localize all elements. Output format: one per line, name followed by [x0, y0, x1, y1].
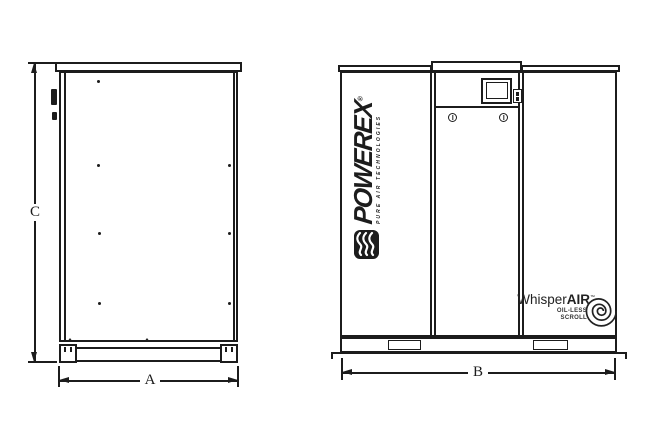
dim-c-arrow-up	[31, 63, 37, 73]
dim-b-arrow-left	[342, 369, 352, 375]
whisperair-subtitle-scroll: SCROLL	[561, 315, 587, 321]
panel-screw	[448, 113, 457, 122]
dim-c-arrow-down	[31, 352, 37, 362]
powerex-wordmark: POWEREX®	[350, 95, 376, 225]
whisperair-subtitle-oilless: OIL-LESS	[557, 308, 587, 314]
dim-c-label: C	[25, 204, 45, 221]
dim-b-arrow-right	[605, 369, 615, 375]
control-display-screen	[486, 82, 508, 99]
panel-screw-dot	[98, 302, 101, 305]
ground-line-end-tick	[625, 354, 627, 359]
front-view-base-skid	[340, 337, 617, 353]
side-view-base-rail	[64, 347, 233, 362]
foot-bolt-slot	[225, 347, 227, 352]
control-button-unit	[513, 89, 522, 103]
side-view-inner-edge-left	[64, 73, 66, 340]
trademark-mark: ™	[590, 295, 595, 301]
panel-screw	[499, 113, 508, 122]
panel-screw-dot	[97, 164, 100, 167]
whisperair-logo: WhisperAIR™ OIL-LESS SCROLL	[528, 292, 618, 334]
side-view-cabinet-body	[59, 71, 238, 342]
panel-screw-dot	[228, 302, 231, 305]
panel-screw-dot	[228, 164, 231, 167]
side-view-inner-edge-right	[233, 73, 235, 340]
dim-a-label: A	[140, 372, 160, 389]
panel-screw-dot	[97, 80, 100, 83]
dim-a-arrow-left	[59, 377, 69, 383]
panel-divider-line	[430, 73, 432, 335]
foot-bolt-slot	[64, 347, 66, 352]
panel-divider-line	[434, 73, 436, 335]
powerex-wordmark-block: POWEREX® PURE AIR TECHNOLOGIES	[350, 96, 382, 224]
base-alignment-notch	[144, 338, 150, 342]
foot-bolt-slot	[231, 347, 233, 352]
control-button	[516, 97, 520, 101]
hinge-tab-lower	[52, 112, 57, 120]
hinge-tab-upper	[51, 89, 57, 105]
side-view-foot-right	[220, 344, 238, 363]
registered-mark: ®	[357, 96, 364, 102]
control-button	[516, 92, 520, 96]
forklift-slot-right	[533, 340, 568, 350]
panel-screw-dot	[228, 232, 231, 235]
control-module-bottom-line	[435, 106, 519, 108]
foot-bolt-slot	[70, 347, 72, 352]
dim-b-label: B	[468, 364, 488, 381]
compressor-dimension-drawing: C A	[0, 0, 650, 443]
powerex-logo: POWEREX® PURE AIR TECHNOLOGIES	[348, 84, 384, 260]
whisperair-wordmark: WhisperAIR™	[517, 292, 595, 307]
base-alignment-notch	[67, 338, 73, 342]
powerex-wave-icon	[353, 228, 380, 260]
dim-a-arrow-right	[228, 377, 238, 383]
ground-line-end-tick	[331, 354, 333, 359]
forklift-slot-left	[388, 340, 421, 350]
panel-screw-dot	[98, 232, 101, 235]
side-view-foot-left	[59, 344, 77, 363]
